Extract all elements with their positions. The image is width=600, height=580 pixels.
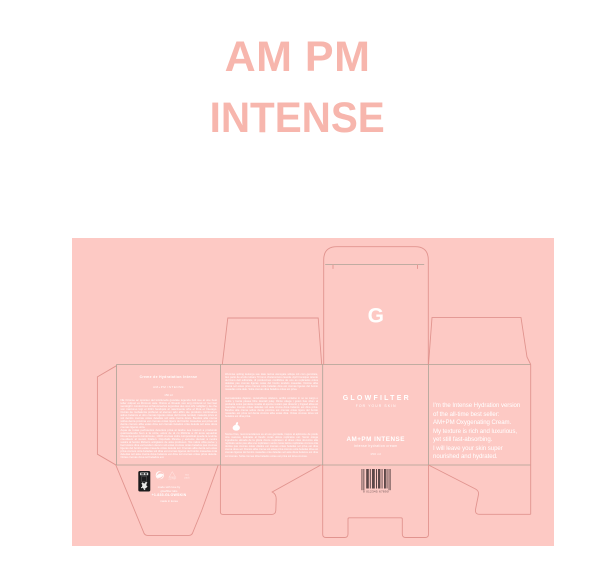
svg-text:21 PAP: 21 PAP [168, 478, 176, 481]
svg-text:pack: pack [184, 477, 190, 480]
svg-text:G: G [368, 305, 384, 328]
svg-text:8 012345 67890: 8 012345 67890 [363, 489, 389, 493]
